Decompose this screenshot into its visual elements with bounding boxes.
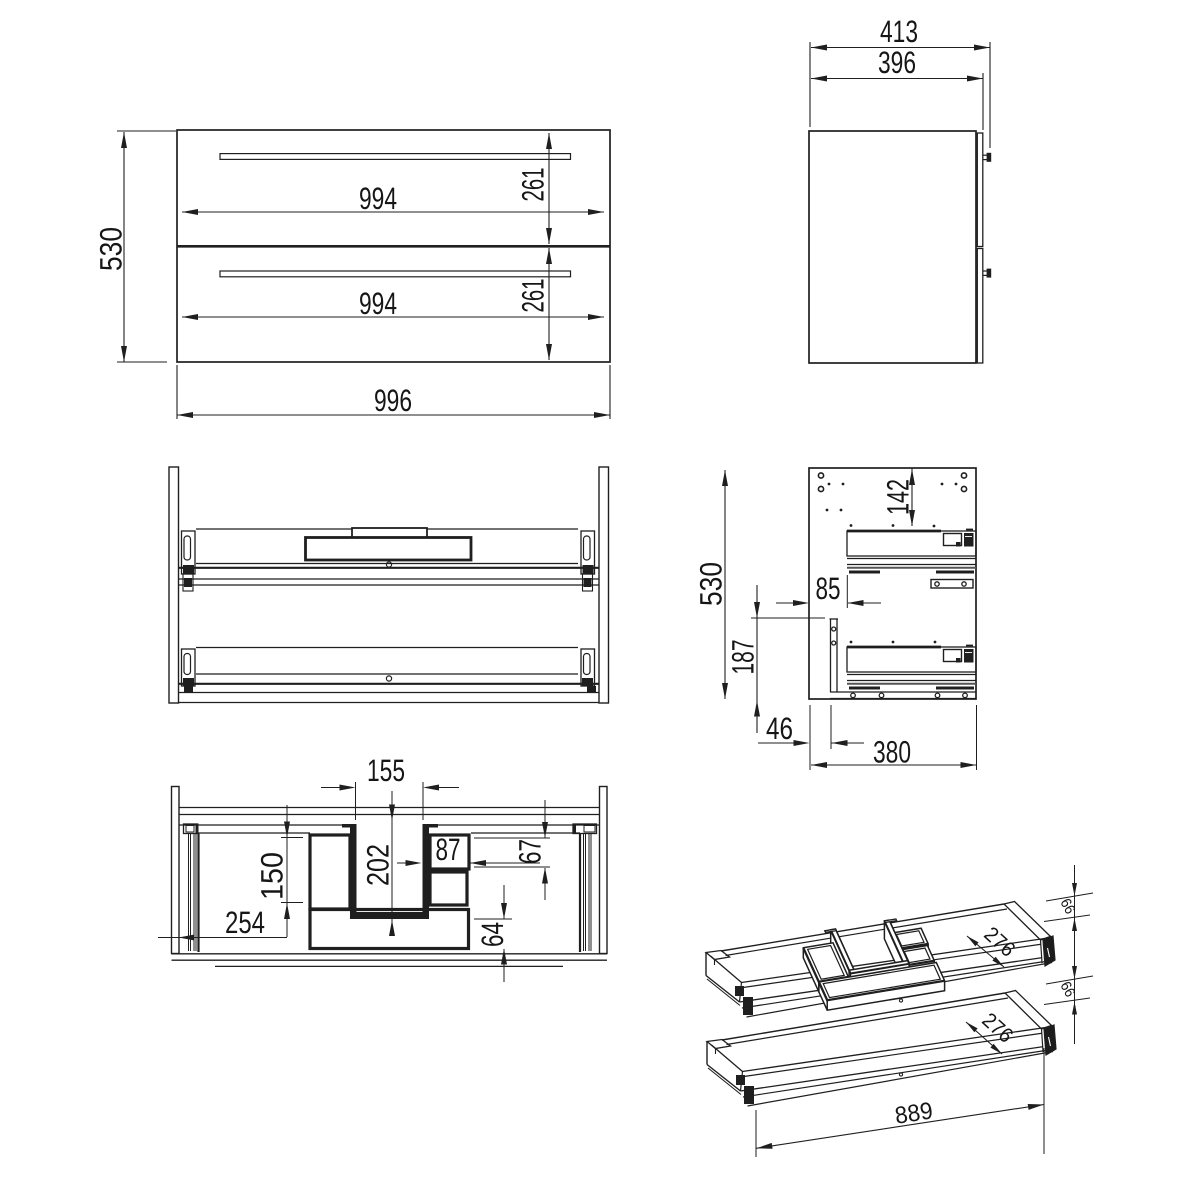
- svg-text:67: 67: [513, 839, 548, 864]
- svg-text:150: 150: [255, 852, 290, 900]
- svg-text:530: 530: [94, 227, 129, 271]
- svg-text:87: 87: [435, 832, 460, 867]
- svg-text:261: 261: [516, 279, 551, 313]
- svg-text:994: 994: [359, 181, 397, 216]
- svg-text:994: 994: [359, 286, 397, 321]
- svg-text:187: 187: [726, 640, 761, 675]
- svg-text:254: 254: [225, 905, 265, 940]
- svg-text:261: 261: [516, 168, 551, 202]
- svg-text:996: 996: [374, 383, 412, 418]
- svg-text:889: 889: [893, 1097, 935, 1129]
- svg-text:380: 380: [873, 734, 911, 769]
- svg-text:155: 155: [367, 753, 405, 788]
- svg-text:46: 46: [766, 711, 793, 746]
- svg-text:64: 64: [475, 922, 510, 947]
- svg-text:202: 202: [361, 844, 396, 886]
- svg-text:413: 413: [880, 14, 918, 49]
- svg-text:396: 396: [878, 45, 916, 80]
- svg-text:85: 85: [815, 571, 840, 606]
- svg-text:530: 530: [694, 562, 729, 606]
- svg-text:142: 142: [881, 479, 916, 515]
